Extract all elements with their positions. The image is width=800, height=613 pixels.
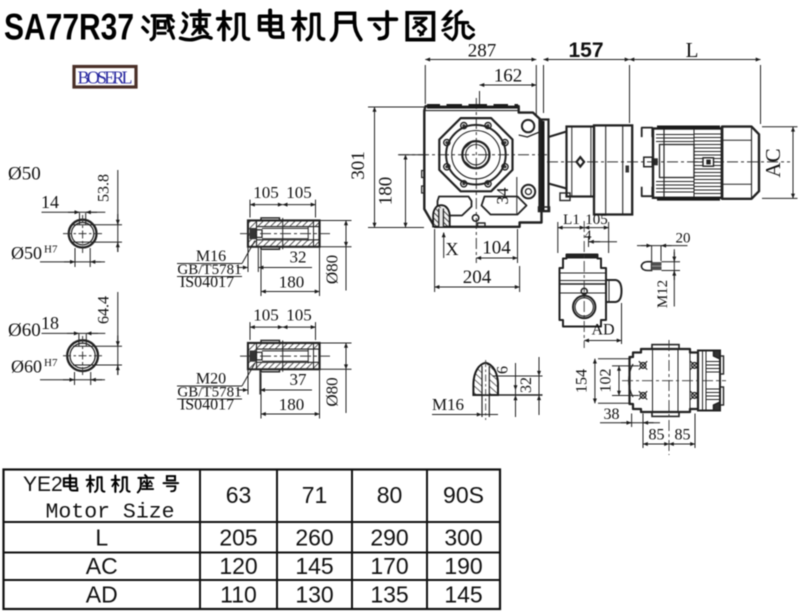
svg-text:105: 105 [253, 306, 279, 325]
svg-text:130: 130 [295, 582, 333, 608]
svg-text:105: 105 [286, 183, 312, 202]
svg-text:Ø80: Ø80 [323, 255, 342, 284]
svg-text:180: 180 [376, 177, 397, 206]
svg-text:110: 110 [220, 582, 257, 608]
svg-text:Ø60: Ø60 [11, 357, 42, 377]
svg-text:71: 71 [302, 482, 328, 508]
svg-text:105: 105 [253, 183, 279, 202]
svg-text:L: L [95, 525, 108, 551]
svg-text:105: 105 [286, 306, 312, 325]
svg-text:38: 38 [604, 406, 620, 423]
svg-text:32: 32 [518, 377, 535, 393]
svg-text:Motor Size: Motor Size [46, 501, 175, 525]
svg-text:170: 170 [370, 553, 408, 579]
svg-text:37: 37 [290, 370, 308, 389]
svg-text:34: 34 [493, 187, 512, 205]
svg-text:AD: AD [591, 322, 614, 339]
svg-text:180: 180 [279, 273, 305, 292]
svg-text:4: 4 [585, 229, 592, 244]
svg-text:154: 154 [574, 369, 591, 393]
svg-text:64.4: 64.4 [96, 296, 113, 324]
svg-text:H7: H7 [44, 244, 58, 256]
svg-text:BOSERL: BOSERL [78, 68, 133, 88]
svg-text:L1: L1 [563, 212, 580, 228]
svg-text:20: 20 [676, 231, 691, 247]
svg-text:M12: M12 [655, 280, 671, 308]
svg-text:Ø50: Ø50 [8, 164, 41, 185]
svg-text:190: 190 [444, 553, 482, 579]
svg-text:63: 63 [226, 482, 252, 508]
svg-text:Ø50: Ø50 [11, 243, 42, 263]
svg-text:M16: M16 [432, 395, 464, 414]
svg-text:301: 301 [348, 151, 369, 180]
svg-text:H7: H7 [44, 357, 58, 369]
svg-text:204: 204 [463, 267, 492, 288]
svg-text:18: 18 [41, 313, 59, 333]
svg-text:AD: AD [86, 582, 118, 608]
svg-text:Ø60: Ø60 [8, 320, 41, 341]
svg-text:32: 32 [290, 248, 307, 267]
svg-text:260: 260 [295, 525, 333, 551]
svg-text:L: L [686, 38, 699, 62]
svg-text:145: 145 [444, 582, 482, 608]
svg-text:135: 135 [370, 582, 408, 608]
svg-text:AC: AC [761, 148, 785, 177]
svg-text:290: 290 [370, 525, 408, 551]
svg-text:85: 85 [675, 427, 691, 444]
svg-text:SA77R37: SA77R37 [4, 5, 134, 47]
svg-text:205: 205 [219, 525, 257, 551]
svg-text:Ø80: Ø80 [323, 377, 342, 406]
svg-text:IS04017: IS04017 [180, 274, 234, 291]
svg-text:300: 300 [444, 525, 482, 551]
svg-text:105: 105 [585, 212, 608, 228]
svg-text:14: 14 [41, 192, 59, 212]
svg-text:AC: AC [86, 553, 118, 579]
svg-text:X: X [446, 239, 459, 259]
svg-text:145: 145 [295, 553, 333, 579]
svg-text:120: 120 [219, 553, 257, 579]
svg-text:80: 80 [377, 482, 403, 508]
svg-text:YE2: YE2 [23, 473, 63, 496]
svg-text:90S: 90S [443, 482, 484, 508]
svg-text:287: 287 [468, 41, 497, 62]
svg-text:157: 157 [568, 39, 603, 62]
svg-text:85: 85 [649, 427, 665, 444]
svg-text:53.8: 53.8 [96, 174, 113, 202]
svg-text:180: 180 [279, 395, 305, 414]
svg-text:IS04017: IS04017 [180, 397, 234, 414]
svg-text:102: 102 [598, 369, 615, 393]
svg-text:104: 104 [482, 238, 511, 259]
svg-text:162: 162 [494, 66, 523, 87]
svg-text:6: 6 [495, 366, 512, 374]
